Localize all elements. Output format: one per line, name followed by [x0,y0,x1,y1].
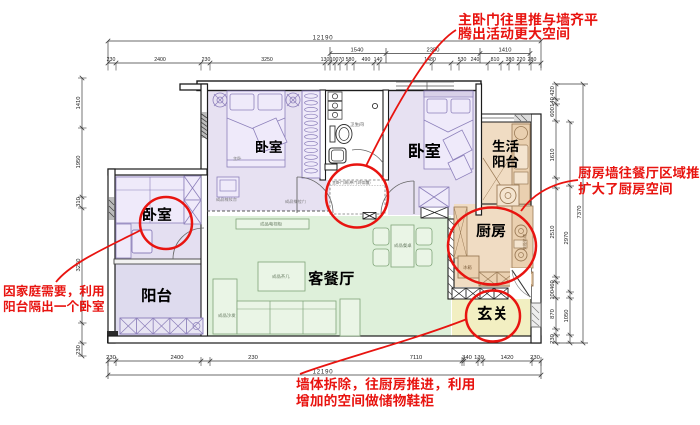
svg-text:230: 230 [202,57,211,63]
svg-text:340: 340 [462,355,472,361]
svg-text:1610: 1610 [550,149,556,162]
svg-text:1950: 1950 [76,156,82,169]
svg-text:230: 230 [106,355,116,361]
svg-text:230: 230 [107,57,116,63]
svg-text:10070: 10070 [330,57,345,63]
svg-text:530: 530 [458,57,467,63]
svg-text:2400: 2400 [154,57,166,63]
svg-text:100460: 100460 [550,280,556,299]
svg-text:1410: 1410 [76,97,82,110]
svg-text:1420: 1420 [501,355,514,361]
svg-text:600: 600 [550,107,556,117]
svg-text:7110: 7110 [410,355,422,361]
svg-text:490: 490 [362,57,371,63]
svg-text:7370: 7370 [577,206,583,219]
svg-text:3250: 3250 [261,57,273,63]
svg-text:12190: 12190 [313,36,334,42]
svg-text:220: 220 [517,57,526,63]
svg-text:140: 140 [374,57,383,63]
svg-text:140: 140 [550,97,556,107]
svg-text:420: 420 [550,86,556,96]
svg-text:12190: 12190 [313,370,334,376]
svg-text:2510: 2510 [550,226,556,239]
svg-text:310: 310 [76,197,82,207]
svg-text:2970: 2970 [564,232,570,245]
svg-text:240: 240 [471,57,480,63]
svg-text:1050: 1050 [564,310,570,323]
svg-text:810: 810 [491,57,500,63]
svg-text:380: 380 [506,57,515,63]
svg-text:230: 230 [530,355,540,361]
svg-text:130: 130 [321,57,330,63]
svg-text:580: 580 [346,57,355,63]
svg-text:230: 230 [550,334,556,344]
svg-text:1410: 1410 [499,48,512,54]
svg-text:230: 230 [76,345,82,355]
svg-text:2400: 2400 [171,355,184,361]
svg-text:870: 870 [550,309,556,319]
svg-text:280: 280 [528,57,537,63]
svg-text:230: 230 [248,355,258,361]
svg-text:1540: 1540 [351,48,364,54]
svg-text:130: 130 [474,355,484,361]
